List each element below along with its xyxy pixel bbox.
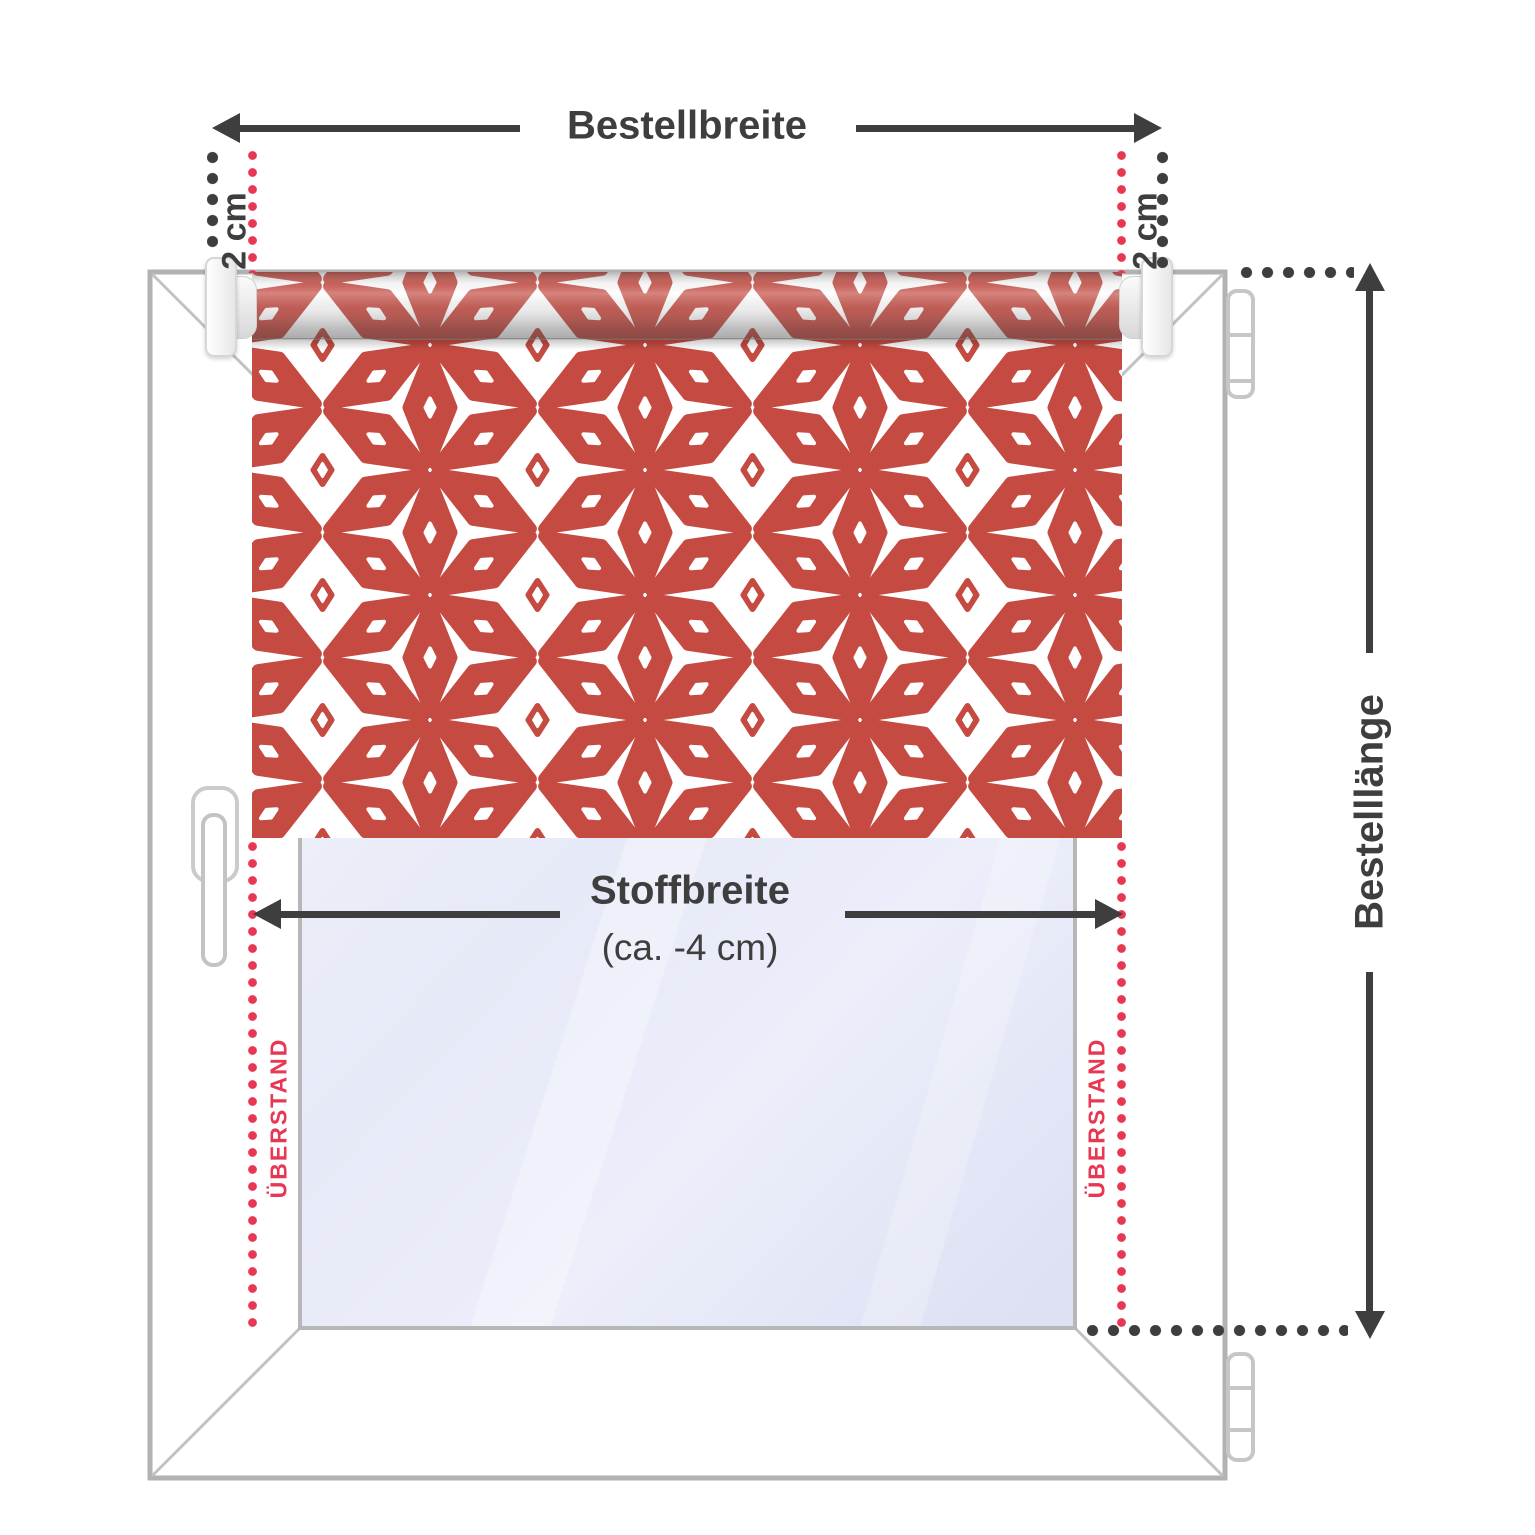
bracket-right (1141, 257, 1173, 357)
roller-tube-shade (252, 272, 1122, 339)
fabric-width-arrowhead-left-icon (253, 899, 281, 929)
fabric-width-line-left (279, 911, 560, 918)
offset-left-label: 2 cm (216, 192, 255, 270)
order-length-line-bottom (1366, 972, 1373, 1312)
roller-blind-fabric (252, 272, 1122, 838)
fabric-width-note: (ca. -4 cm) (602, 927, 779, 969)
fabric-width-line-right (845, 911, 1095, 918)
order-width-arrowhead-left-icon (212, 113, 240, 143)
order-width-line-left (238, 125, 520, 132)
roller-tube-shadow (252, 340, 1122, 350)
hinge-bottom-divider-2 (1230, 1428, 1251, 1432)
order-length-line-top (1366, 289, 1373, 653)
order-width-arrowhead-right-icon (1134, 113, 1162, 143)
fabric-width-arrowhead-right-icon (1095, 899, 1123, 929)
dotted-guide-glass-bottom (1082, 1325, 1348, 1336)
hinge-top (1226, 289, 1255, 399)
offset-right-label: 2 cm (1127, 192, 1166, 270)
hinge-bottom (1226, 1352, 1255, 1462)
window-handle-lever (201, 813, 227, 967)
dotted-guide-frame-top-right (1236, 267, 1354, 278)
blind-pattern (252, 272, 1122, 838)
bracket-left (205, 257, 237, 357)
order-length-arrowhead-down-icon (1355, 1311, 1385, 1339)
hinge-top-divider-2 (1230, 379, 1251, 383)
overhang-left-label: ÜBERSTAND (266, 1038, 293, 1199)
roller-blind-measurement-diagram: Bestellbreite 2 cm 2 cm ÜBERSTAND ÜBERST… (0, 0, 1535, 1535)
order-length-label: Bestelllänge (1348, 694, 1393, 930)
order-width-label: Bestellbreite (567, 104, 807, 149)
hinge-bottom-divider-1 (1230, 1386, 1251, 1390)
dotted-guide-fabric-top-right (1117, 147, 1126, 273)
order-length-arrowhead-up-icon (1355, 263, 1385, 291)
overhang-right-label: ÜBERSTAND (1084, 1038, 1111, 1199)
order-width-line-right (856, 125, 1134, 132)
hinge-top-divider-1 (1230, 333, 1251, 337)
fabric-width-label: Stoffbreite (590, 869, 790, 914)
